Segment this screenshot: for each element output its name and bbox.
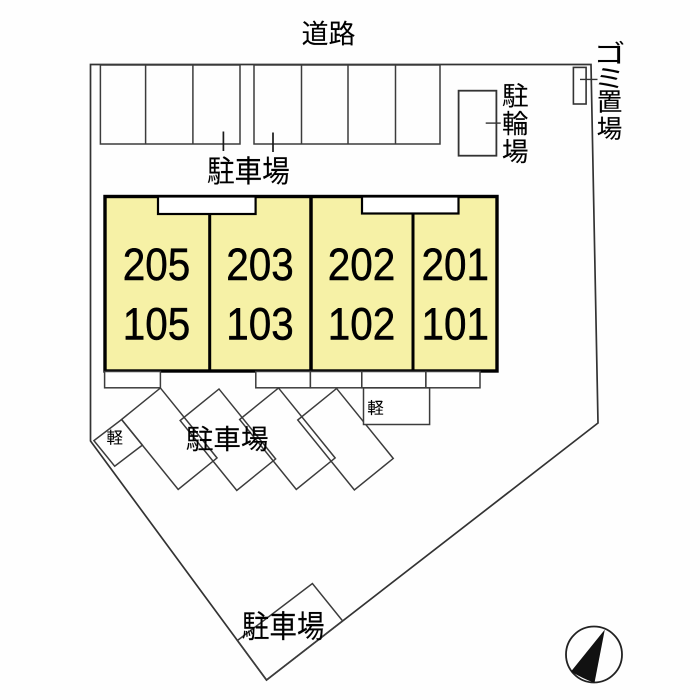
svg-text:205: 205 [123, 239, 191, 290]
svg-text:105: 105 [123, 299, 191, 350]
svg-text:102: 102 [328, 299, 396, 350]
svg-text:201: 201 [422, 239, 490, 290]
svg-text:203: 203 [226, 239, 294, 290]
svg-text:101: 101 [422, 299, 490, 350]
svg-text:103: 103 [226, 299, 294, 350]
svg-text:202: 202 [328, 239, 396, 290]
